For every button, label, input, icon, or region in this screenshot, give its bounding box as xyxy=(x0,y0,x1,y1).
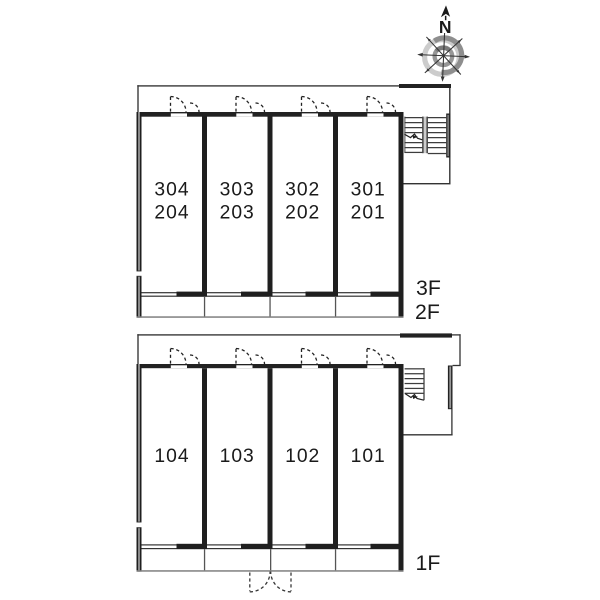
svg-text:104: 104 xyxy=(154,446,189,467)
svg-text:101: 101 xyxy=(351,446,386,467)
svg-text:2F: 2F xyxy=(415,300,440,324)
svg-text:301: 301 xyxy=(351,179,386,200)
svg-text:203: 203 xyxy=(220,203,255,224)
svg-text:1F: 1F xyxy=(416,551,441,575)
svg-text:204: 204 xyxy=(154,203,189,224)
svg-text:302: 302 xyxy=(285,179,320,200)
svg-text:N: N xyxy=(439,17,452,37)
svg-text:103: 103 xyxy=(220,446,255,467)
svg-text:304: 304 xyxy=(154,179,189,200)
svg-text:3F: 3F xyxy=(416,276,441,300)
svg-text:102: 102 xyxy=(285,446,320,467)
svg-text:202: 202 xyxy=(285,203,320,224)
svg-text:201: 201 xyxy=(351,203,386,224)
svg-text:303: 303 xyxy=(220,179,255,200)
